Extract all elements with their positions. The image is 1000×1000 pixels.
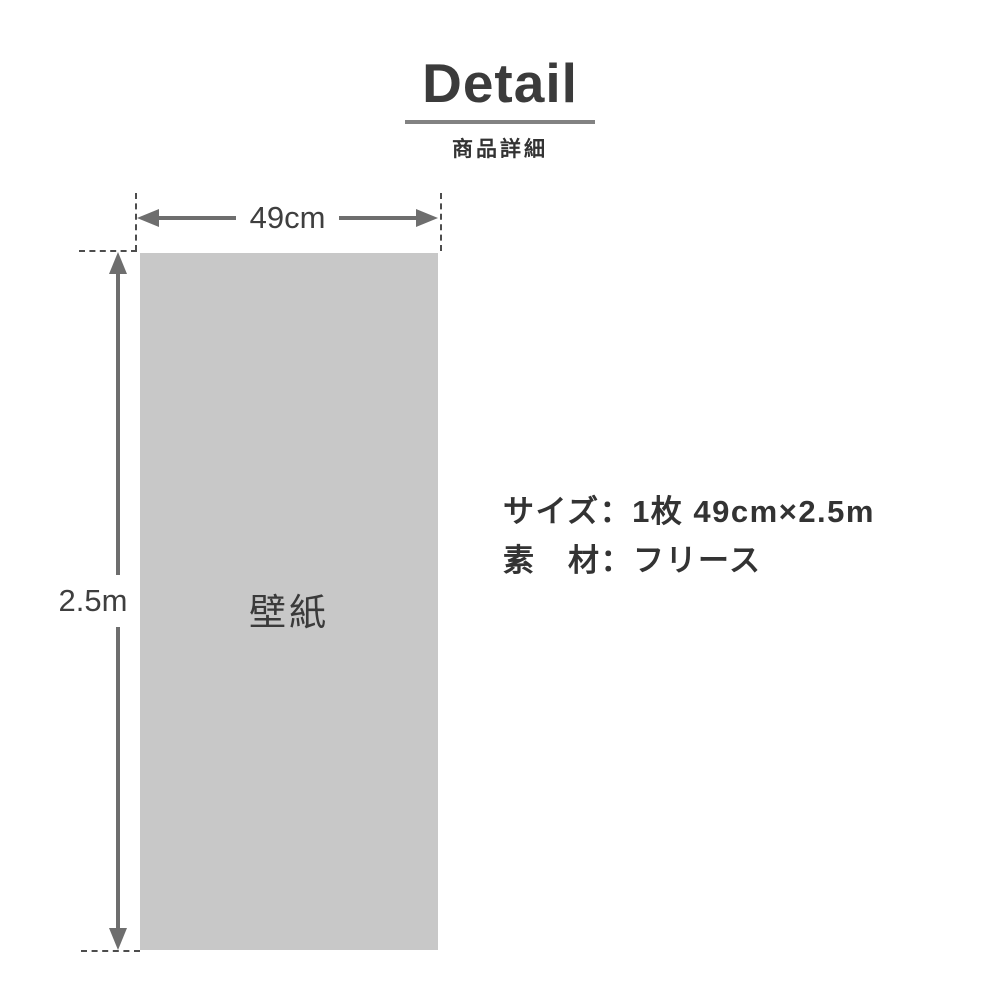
arrowhead-up-icon: [109, 252, 127, 274]
wallpaper-panel-label: 壁紙: [249, 568, 329, 636]
height-dimension-line-bottom: [116, 627, 120, 928]
spec-size: サイズ：1枚 49cm×2.5m: [503, 490, 875, 534]
height-dimension-line-top: [116, 274, 120, 575]
width-dimension: 49cm: [137, 199, 438, 237]
title-underline: [405, 120, 595, 124]
width-dimension-line-left: [159, 216, 236, 220]
dashed-guide-vertical-right: [440, 193, 442, 251]
arrowhead-down-icon: [109, 928, 127, 950]
height-label-slot: 2.5m: [57, 575, 129, 627]
arrowhead-left-icon: [137, 209, 159, 227]
width-dimension-line-right: [339, 216, 416, 220]
product-detail-page: Detail 商品詳細 49cm 壁紙 2.5m サイズ：1枚 49cm×2.5…: [0, 0, 1000, 1000]
page-title: Detail: [0, 56, 1000, 111]
spec-list: サイズ：1枚 49cm×2.5m 素 材：フリース: [503, 490, 875, 583]
height-label: 2.5m: [59, 583, 128, 619]
wallpaper-panel: 壁紙: [140, 253, 438, 950]
spec-material: 素 材：フリース: [503, 539, 875, 583]
arrowhead-right-icon: [416, 209, 438, 227]
height-dimension: 2.5m: [101, 252, 135, 950]
width-label: 49cm: [236, 200, 340, 236]
dashed-guide-horizontal-bottom: [81, 950, 140, 952]
page-subtitle: 商品詳細: [0, 133, 1000, 163]
